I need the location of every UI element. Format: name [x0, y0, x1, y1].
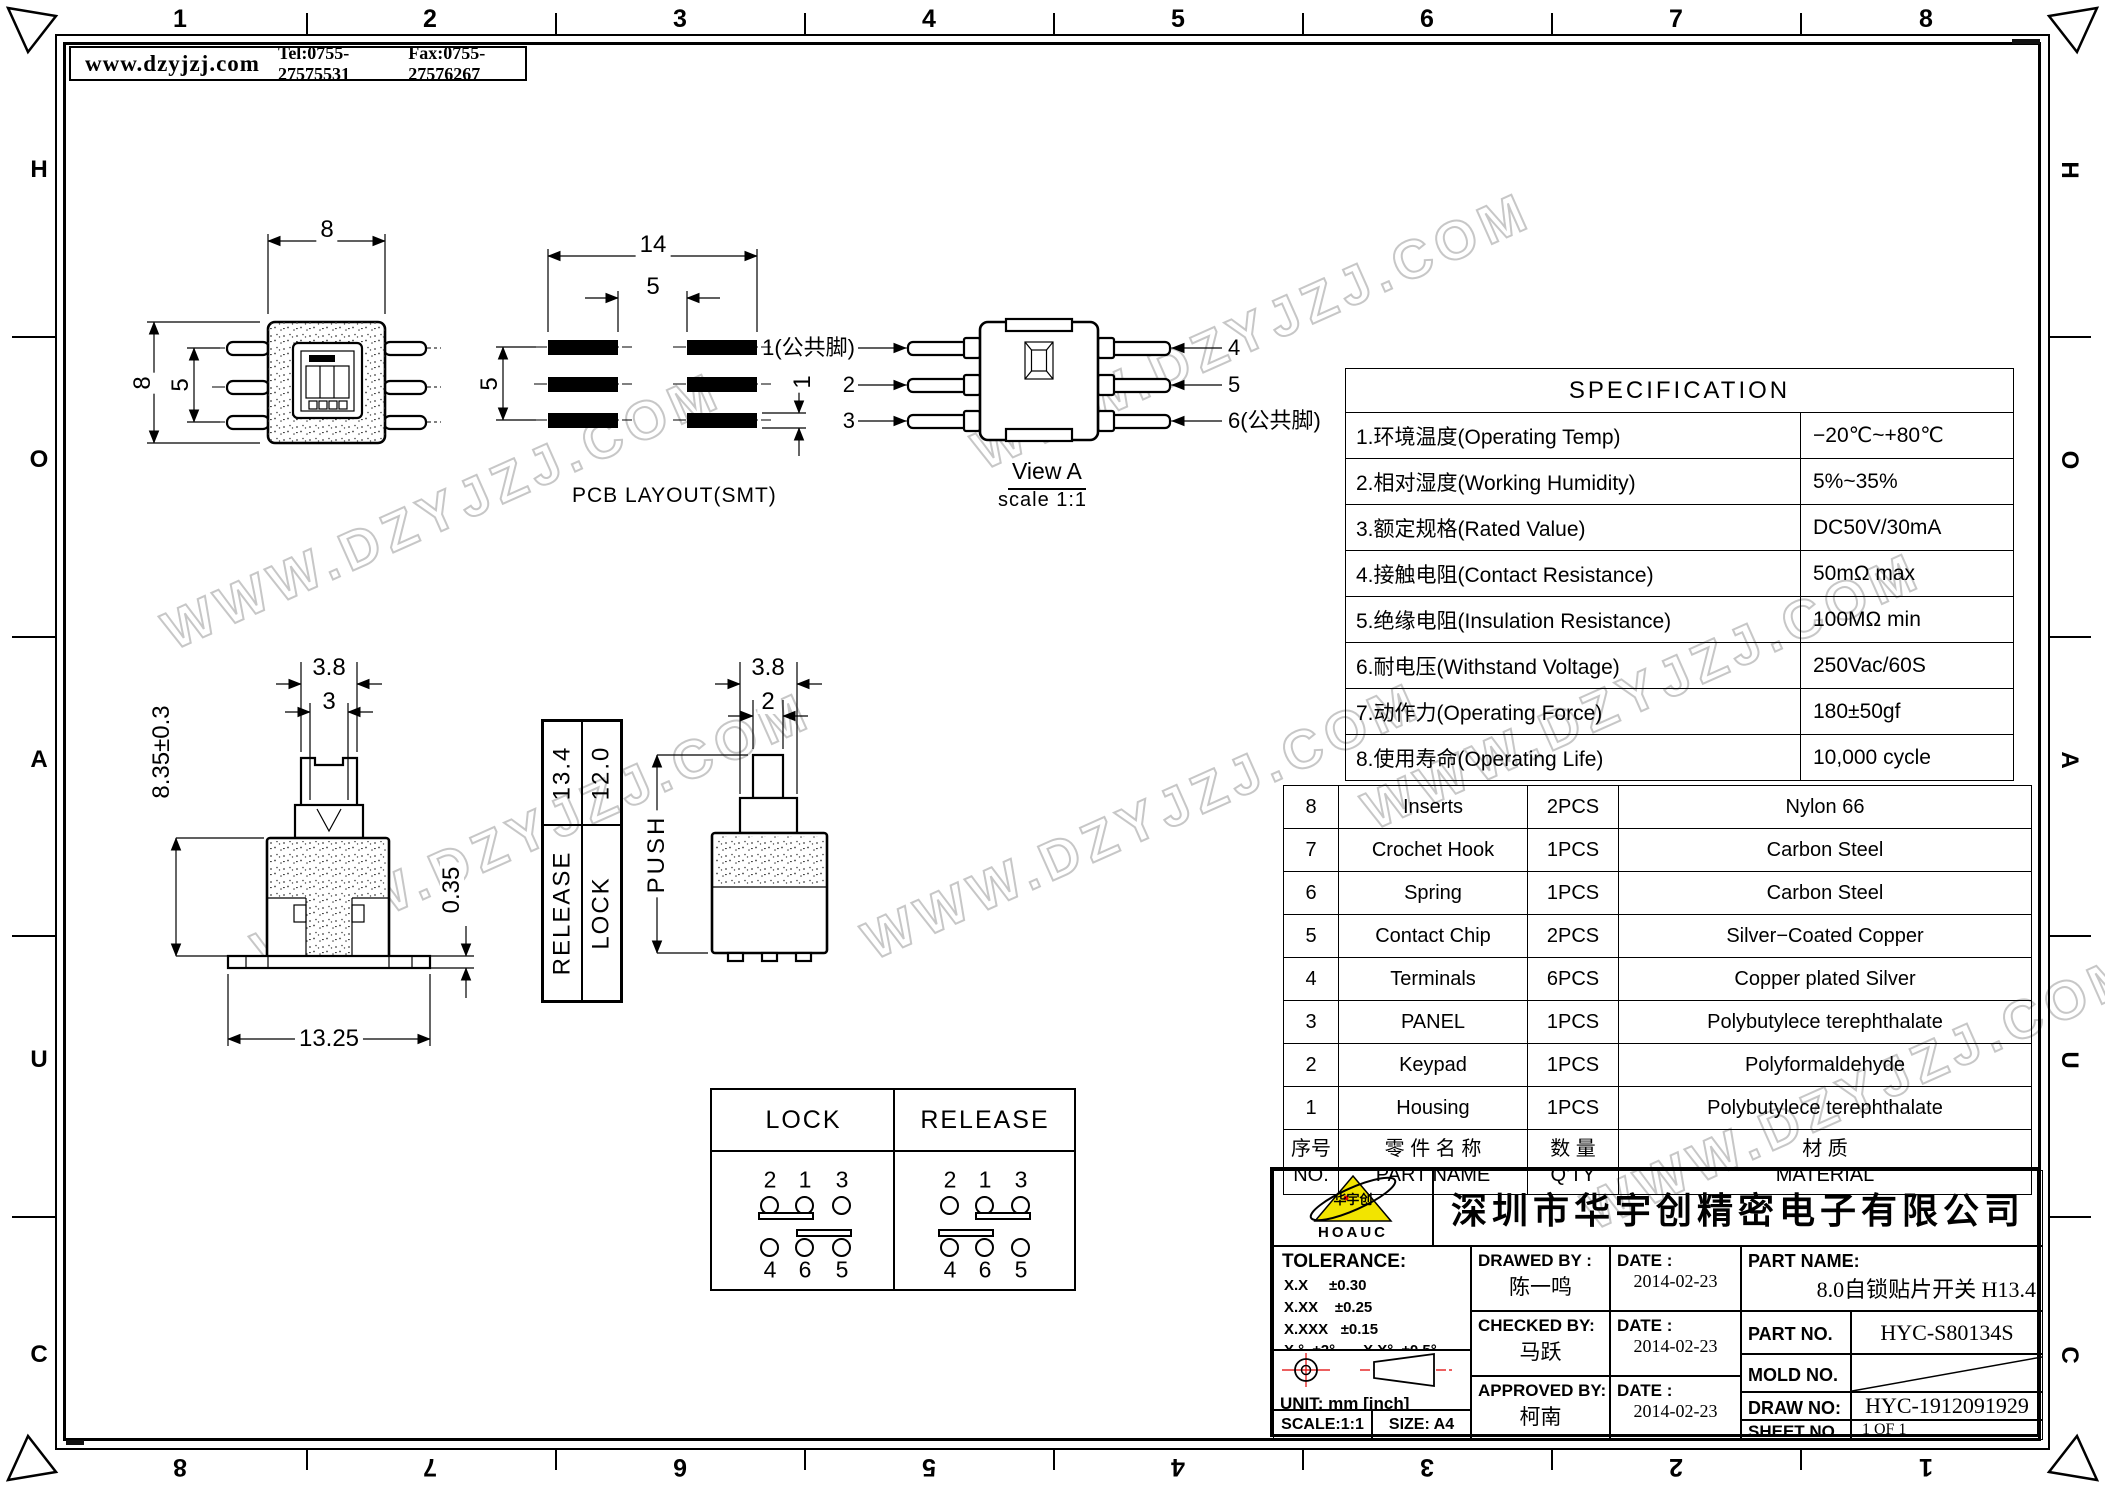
part-name-label: PART NAME: [1742, 1247, 2042, 1272]
table-row: 8Inserts2PCSNylon 66 [1284, 786, 2032, 829]
stroke-table: 13.4 12.0 RELEASE LOCK [541, 719, 623, 1003]
release-diagram: 2 1 3 4 6 5 [895, 1152, 1075, 1290]
top-view-drawing [147, 234, 441, 443]
pin-number: 2 [764, 1169, 777, 1192]
pin-number: 1 [799, 1169, 812, 1192]
lock-diagram: 2 1 3 4 6 5 [712, 1152, 895, 1290]
approved-date-cell: DATE : 2014-02-23 [1610, 1376, 1741, 1440]
pin-number: 5 [836, 1259, 849, 1282]
table-row: 1Housing1PCSPolybutylece terephthalate [1284, 1087, 2032, 1130]
pin-number: 3 [836, 1169, 849, 1192]
contact-circle [760, 1238, 779, 1257]
push-label: PUSH [645, 811, 669, 898]
contact-circle [940, 1196, 959, 1215]
part-no: 5 [1284, 915, 1339, 958]
dim-front-foot: 0.35 [440, 863, 464, 918]
drawed-date-cell: DATE : 2014-02-23 [1610, 1246, 1741, 1311]
contact-bar [975, 1212, 1031, 1220]
dim-top-height: 8 [131, 372, 155, 393]
cone-projection-icon [1374, 1354, 1434, 1386]
dim-pcb-pitch: 5 [478, 373, 502, 394]
part-qty: 2PCS [1528, 786, 1619, 829]
sheet-no-value: 1 OF 1 [1851, 1420, 2043, 1440]
lock-header: LOCK [712, 1090, 895, 1152]
contact-bar [796, 1229, 852, 1237]
lock-stroke-label: LOCK [588, 876, 616, 949]
pin-number: 6 [799, 1259, 812, 1282]
logo-mark-text: 华宇创 [1274, 1189, 1432, 1208]
dim-top-pin-pitch: 5 [169, 374, 193, 395]
contact-circle [832, 1238, 851, 1257]
part-material: Silver−Coated Copper [1619, 915, 2032, 958]
part-name: Inserts [1339, 786, 1528, 829]
part-name: Housing [1339, 1087, 1528, 1130]
spec-value: 180±50gf [1801, 689, 2014, 735]
spec-item: 2.相对湿度(Working Humidity) [1346, 459, 1801, 505]
drawed-by-name: 陈一鸣 [1472, 1271, 1609, 1301]
tolerance-line: X.X° ±0.5° [1353, 1340, 1437, 1350]
size-cell: SIZE: A4 [1372, 1410, 1471, 1440]
part-name: Crochet Hook [1339, 829, 1528, 872]
spec-item: 4.接触电阻(Contact Resistance) [1346, 551, 1801, 597]
pin-number: 2 [944, 1169, 957, 1192]
view-a-drawing [858, 319, 1222, 441]
spec-value: 5%~35% [1801, 459, 2014, 505]
part-qty: 2PCS [1528, 915, 1619, 958]
company-name: 深圳市华宇创精密电子有限公司 [1433, 1170, 2043, 1246]
part-no: 2 [1284, 1044, 1339, 1087]
checked-date: 2014-02-23 [1611, 1336, 1740, 1357]
sheet-no-label: SHEET NO. [1741, 1420, 1851, 1440]
date-label: DATE : [1611, 1377, 1740, 1401]
part-no: 4 [1284, 958, 1339, 1001]
contact-circle [832, 1196, 851, 1215]
dim-pcb-overall: 14 [636, 233, 671, 257]
pin-number: 5 [1015, 1259, 1028, 1282]
release-stroke-label: RELEASE [549, 851, 577, 976]
part-material: Nylon 66 [1619, 786, 2032, 829]
pin6-label: 6(公共脚) [1228, 410, 1321, 432]
part-material: Polyformaldehyde [1619, 1044, 2032, 1087]
spec-value: 250Vac/60S [1801, 643, 2014, 689]
checked-by-label: CHECKED BY: [1472, 1312, 1609, 1336]
part-material: Polybutylece terephthalate [1619, 1001, 2032, 1044]
table-row: 3PANEL1PCSPolybutylece terephthalate [1284, 1001, 2032, 1044]
contact-bar [758, 1212, 814, 1220]
title-block: 华宇创 HOAUC 深圳市华宇创精密电子有限公司 TOLERANCE: X.X … [1270, 1167, 2040, 1437]
pin-number: 4 [944, 1259, 957, 1282]
part-name: Terminals [1339, 958, 1528, 1001]
projection-symbols [1274, 1351, 1470, 1389]
view-a-scale: scale 1:1 [998, 489, 1087, 512]
draw-no-value: HYC-1912091929 [1851, 1392, 2043, 1420]
part-no: 3 [1284, 1001, 1339, 1044]
dim-front-stem: 3 [318, 690, 339, 714]
approved-by-label: APPROVED BY: [1472, 1377, 1609, 1401]
approved-date: 2014-02-23 [1611, 1401, 1740, 1422]
tolerance-line: X.XXX ±0.15 [1274, 1319, 1470, 1341]
pin-number: 1 [979, 1169, 992, 1192]
date-label: DATE : [1611, 1312, 1740, 1336]
dim-side-stem: 2 [757, 690, 778, 714]
part-name: Contact Chip [1339, 915, 1528, 958]
parts-list-table: 8Inserts2PCSNylon 66 7Crochet Hook1PCSCa… [1283, 785, 2032, 1195]
drawed-date: 2014-02-23 [1611, 1271, 1740, 1292]
contact-circle [1011, 1238, 1030, 1257]
pin1-label: 1(公共脚) [725, 337, 855, 359]
pin4-label: 4 [1228, 337, 1240, 359]
projection-cell: UNIT: mm [inch] [1273, 1350, 1471, 1410]
mold-no-label: MOLD NO. [1741, 1354, 1851, 1392]
pin3-label: 3 [725, 410, 855, 432]
tolerance-line: X.XX ±0.25 [1274, 1297, 1470, 1319]
circuit-state-table: LOCK RELEASE 2 1 3 4 6 5 2 1 3 [710, 1088, 1076, 1291]
table-row: 4Terminals6PCSCopper plated Silver [1284, 958, 2032, 1001]
part-qty: 1PCS [1528, 1044, 1619, 1087]
tolerance-line: X.X ±0.30 [1274, 1275, 1470, 1297]
spec-item: 3.额定规格(Rated Value) [1346, 505, 1801, 551]
contact-circle [975, 1238, 994, 1257]
drawed-by-label: DRAWED BY : [1472, 1247, 1609, 1271]
drawing-sheet: WWW.DZYJZJ.COM WWW.DZYJZJ.COM WWW.DZYJZJ… [0, 0, 2105, 1488]
dim-side-cap: 3.8 [747, 656, 788, 680]
pcb-layout-caption: PCB LAYOUT(SMT) [572, 484, 777, 508]
approved-by-name: 柯南 [1472, 1401, 1609, 1431]
spec-value: 50mΩ max [1801, 551, 2014, 597]
checked-by-cell: CHECKED BY: 马跃 [1471, 1311, 1610, 1376]
part-no: 7 [1284, 829, 1339, 872]
drawed-by-cell: DRAWED BY : 陈一鸣 [1471, 1246, 1610, 1311]
dim-pcb-gap: 5 [642, 275, 663, 299]
view-a-title: View A [1008, 458, 1086, 490]
date-label: DATE : [1611, 1247, 1740, 1271]
part-no-label: PART NO. [1741, 1311, 1851, 1354]
dim-top-width: 8 [316, 218, 337, 242]
spec-item: 7.动作力(Operating Force) [1346, 689, 1801, 735]
part-no: 8 [1284, 786, 1339, 829]
part-material: Carbon Steel [1619, 872, 2032, 915]
table-row: 7Crochet Hook1PCSCarbon Steel [1284, 829, 2032, 872]
spec-value: 100MΩ min [1801, 597, 2014, 643]
spec-item: 6.耐电压(Withstand Voltage) [1346, 643, 1801, 689]
checked-date-cell: DATE : 2014-02-23 [1610, 1311, 1741, 1376]
spec-item: 5.绝缘电阻(Insulation Resistance) [1346, 597, 1801, 643]
part-name-cell: PART NAME: 8.0自锁贴片开关 H13.4 [1741, 1246, 2043, 1311]
contact-circle [940, 1238, 959, 1257]
logo-text: HOAUC [1274, 1224, 1432, 1241]
lock-stroke-value: 12.0 [588, 746, 616, 801]
pin-number: 4 [764, 1259, 777, 1282]
part-no-value: HYC-S80134S [1851, 1311, 2043, 1354]
table-row: 6Spring1PCSCarbon Steel [1284, 872, 2032, 915]
spec-title: SPECIFICATION [1346, 369, 2014, 413]
part-name: Spring [1339, 872, 1528, 915]
contact-circle [795, 1238, 814, 1257]
tolerance-line: X.° ±2° [1274, 1340, 1335, 1350]
draw-no-label: DRAW NO: [1741, 1392, 1851, 1420]
spec-value: 10,000 cycle [1801, 735, 2014, 781]
part-material: Polybutylece terephthalate [1619, 1087, 2032, 1130]
part-material: Carbon Steel [1619, 829, 2032, 872]
dim-front-cap: 3.8 [308, 656, 349, 680]
release-header: RELEASE [895, 1090, 1075, 1152]
pin5-label: 5 [1228, 374, 1240, 396]
part-qty: 6PCS [1528, 958, 1619, 1001]
checked-by-name: 马跃 [1472, 1336, 1609, 1366]
mold-no-value [1851, 1354, 2043, 1392]
pin2-label: 2 [725, 374, 855, 396]
part-name: PANEL [1339, 1001, 1528, 1044]
pin-number: 6 [979, 1259, 992, 1282]
tolerance-title: TOLERANCE: [1274, 1247, 1470, 1275]
part-qty: 1PCS [1528, 872, 1619, 915]
contact-bar [938, 1229, 994, 1237]
part-qty: 1PCS [1528, 1087, 1619, 1130]
unit-label: UNIT: mm [inch] [1274, 1394, 1470, 1410]
side-view-drawing [657, 662, 827, 961]
table-row: 2Keypad1PCSPolyformaldehyde [1284, 1044, 2032, 1087]
spec-item: 8.使用寿命(Operating Life) [1346, 735, 1801, 781]
scale-cell: SCALE:1:1 [1273, 1410, 1372, 1440]
spec-item: 1.环境温度(Operating Temp) [1346, 413, 1801, 459]
spec-value: −20℃~+80℃ [1801, 413, 2014, 459]
table-row: 5Contact Chip2PCSSilver−Coated Copper [1284, 915, 2032, 958]
part-qty: 1PCS [1528, 829, 1619, 872]
part-no: 1 [1284, 1087, 1339, 1130]
tolerance-cell: TOLERANCE: X.X ±0.30 X.XX ±0.25 X.XXX ±0… [1273, 1246, 1471, 1350]
dim-front-base: 13.25 [295, 1027, 363, 1051]
part-qty: 1PCS [1528, 1001, 1619, 1044]
pin-number: 3 [1015, 1169, 1028, 1192]
part-no: 6 [1284, 872, 1339, 915]
logo-cell: 华宇创 HOAUC [1273, 1170, 1433, 1246]
part-name: Keypad [1339, 1044, 1528, 1087]
specification-table: SPECIFICATION 1.环境温度(Operating Temp)−20℃… [1345, 368, 2014, 781]
spec-value: DC50V/30mA [1801, 505, 2014, 551]
part-name-value: 8.0自锁贴片开关 H13.4 [1742, 1272, 2042, 1304]
approved-by-cell: APPROVED BY: 柯南 [1471, 1376, 1610, 1440]
front-view-drawing [176, 662, 474, 1046]
release-stroke-value: 13.4 [549, 746, 577, 801]
part-material: Copper plated Silver [1619, 958, 2032, 1001]
dim-front-height: 8.35±0.3 [150, 701, 174, 802]
